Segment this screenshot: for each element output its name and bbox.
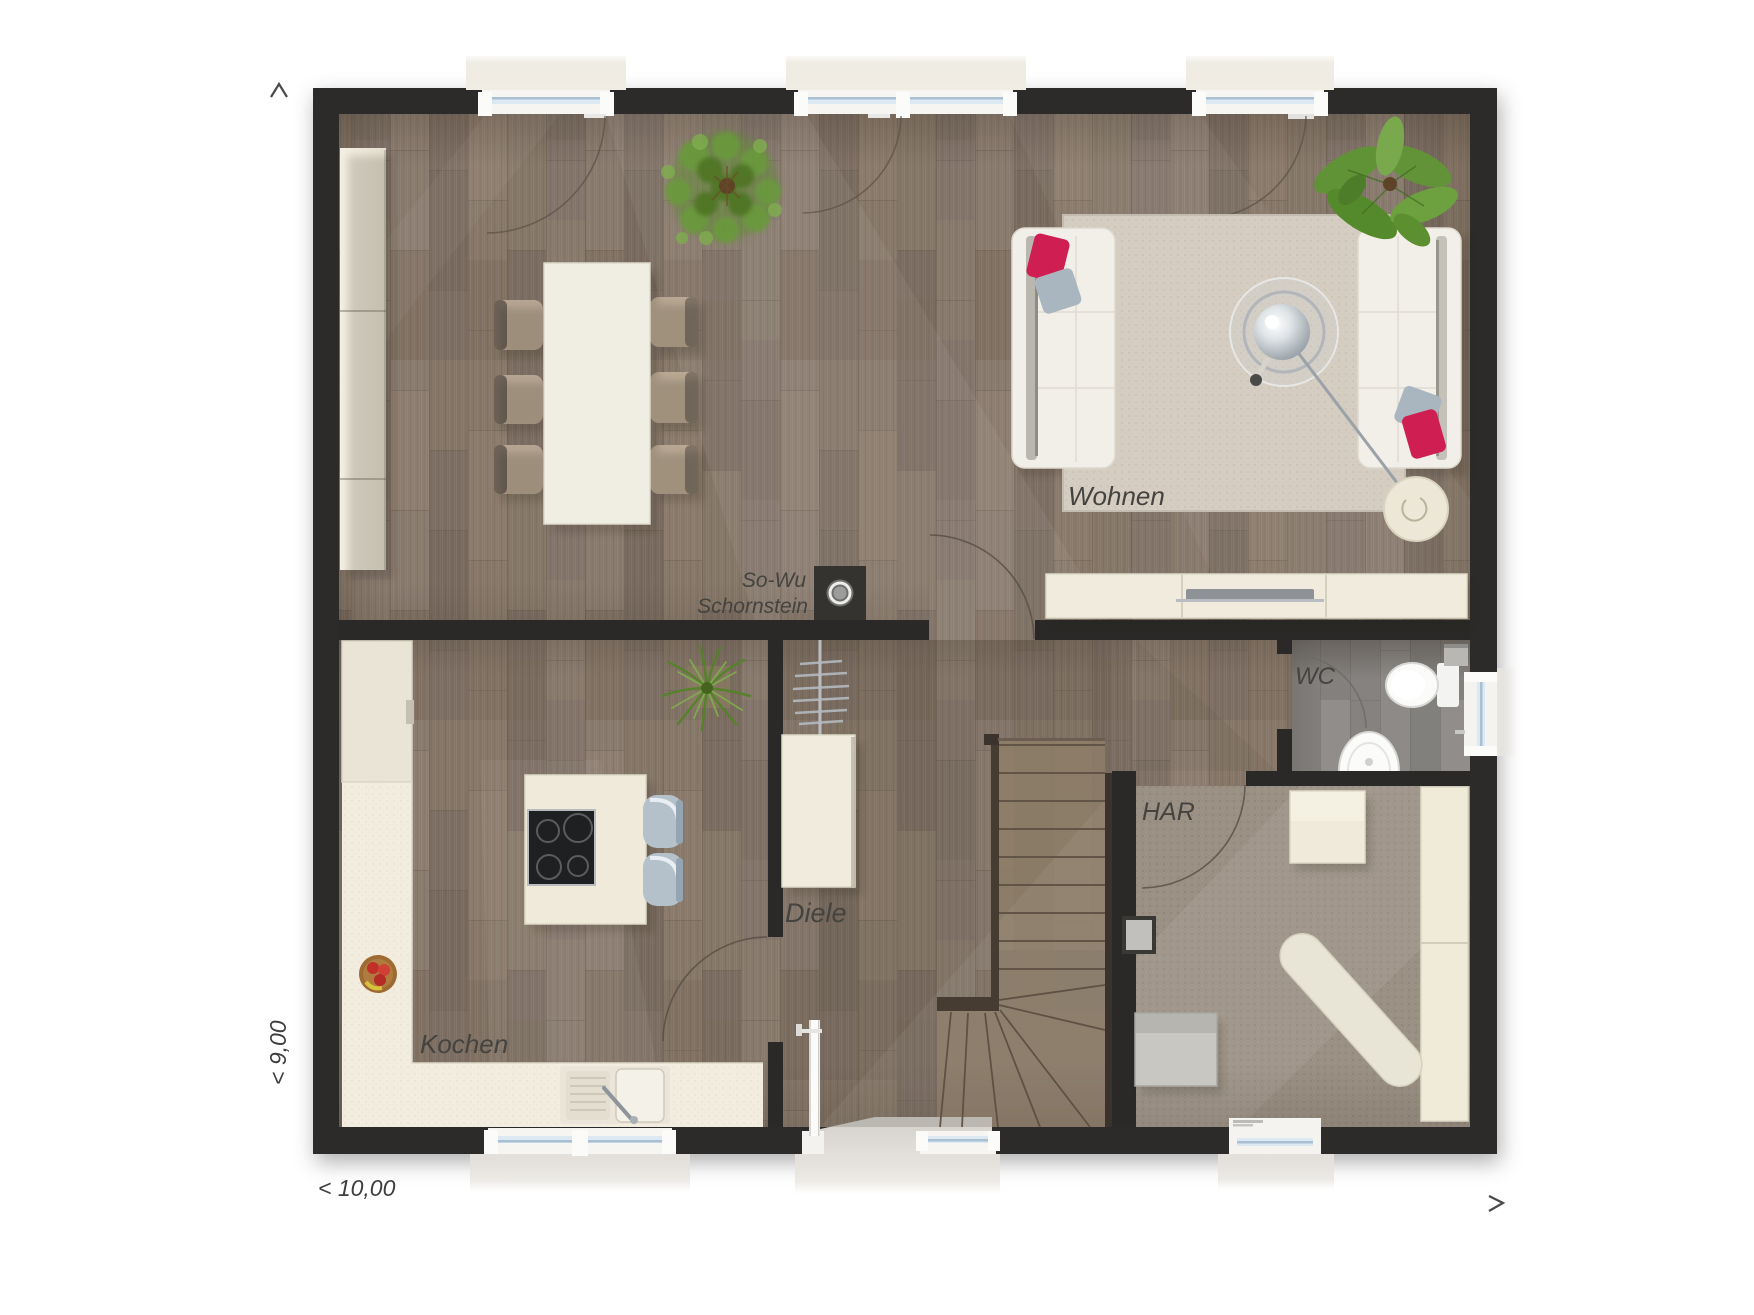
svg-text:WC: WC <box>1295 663 1336 690</box>
svg-text:Wohnen: Wohnen <box>1068 481 1165 511</box>
svg-text:< 9,00: < 9,00 <box>265 1020 291 1085</box>
svg-text:Diele: Diele <box>785 898 847 928</box>
svg-text:Kochen: Kochen <box>420 1029 508 1059</box>
svg-text:< 10,00: < 10,00 <box>318 1175 396 1201</box>
svg-text:So-Wu: So-Wu <box>742 569 807 592</box>
svg-text:Schornstein: Schornstein <box>697 595 808 618</box>
svg-text:HAR: HAR <box>1142 798 1195 826</box>
